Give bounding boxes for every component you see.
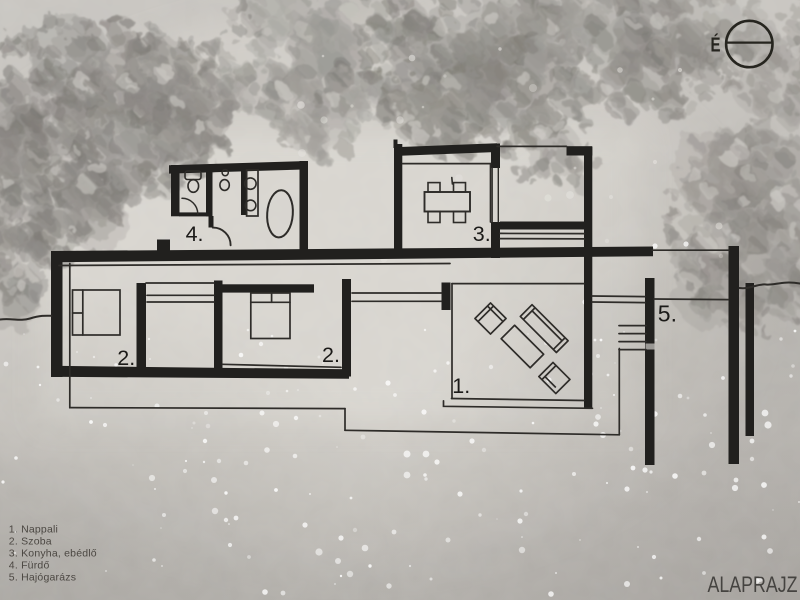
svg-text:1.: 1. [452, 374, 470, 398]
svg-text:4. Fürdő: 4. Fürdő [9, 559, 50, 571]
svg-text:5. Hajógarázs: 5. Hajógarázs [9, 572, 76, 584]
svg-text:3.: 3. [473, 222, 491, 246]
svg-text:3. Konyha, ebédlő: 3. Konyha, ebédlő [9, 547, 97, 559]
svg-text:2.: 2. [117, 346, 135, 370]
svg-text:ALAPRAJZ: ALAPRAJZ [708, 572, 798, 597]
svg-text:2.: 2. [322, 343, 340, 367]
svg-text:2. Szoba: 2. Szoba [9, 535, 52, 547]
svg-text:1. Nappali: 1. Nappali [9, 523, 58, 535]
svg-text:4.: 4. [186, 222, 204, 246]
svg-text:5.: 5. [658, 301, 677, 327]
svg-text:É: É [711, 33, 721, 56]
